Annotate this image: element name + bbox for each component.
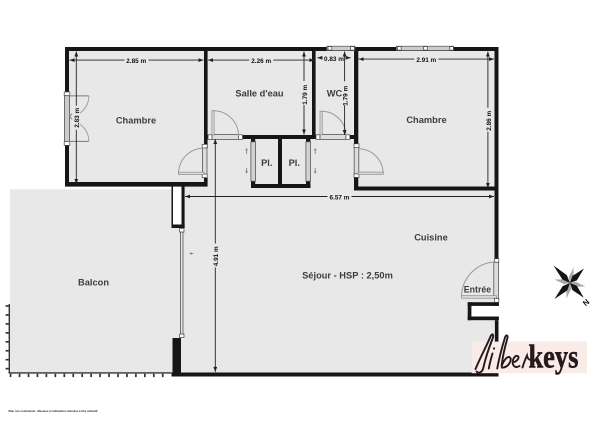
svg-text:2.83 m: 2.83 m <box>74 108 81 128</box>
svg-text:6.57 m: 6.57 m <box>330 195 350 202</box>
svg-text:2.26 m: 2.26 m <box>251 58 271 65</box>
svg-text:Balcon: Balcon <box>78 278 109 288</box>
svg-text:4.91 m: 4.91 m <box>213 246 220 266</box>
svg-text:Séjour - HSP : 2,50m: Séjour - HSP : 2,50m <box>302 270 393 280</box>
svg-text:2.91 m: 2.91 m <box>416 57 436 64</box>
svg-text:keys: keys <box>529 339 579 375</box>
svg-text:Salle d'eau: Salle d'eau <box>235 88 284 98</box>
svg-text:Entrée: Entrée <box>464 285 491 295</box>
svg-text:Pl.: Pl. <box>289 158 300 168</box>
svg-text:2.85 m: 2.85 m <box>126 58 146 65</box>
svg-text:Pl.: Pl. <box>261 158 272 168</box>
svg-text:Chambre: Chambre <box>116 115 156 125</box>
svg-text:N: N <box>581 297 591 308</box>
svg-text:0.83 m: 0.83 m <box>324 56 344 63</box>
svg-text:1.79 m: 1.79 m <box>343 86 350 106</box>
svg-text:WC: WC <box>327 89 343 99</box>
svg-text:Plan non contractuel - Mesures: Plan non contractuel - Mesures et indica… <box>9 409 98 413</box>
svg-text:2.86 m: 2.86 m <box>486 111 493 131</box>
svg-text:1.79 m: 1.79 m <box>302 85 309 105</box>
svg-text:Chambre: Chambre <box>406 115 446 125</box>
svg-text:Cuisine: Cuisine <box>414 233 448 243</box>
